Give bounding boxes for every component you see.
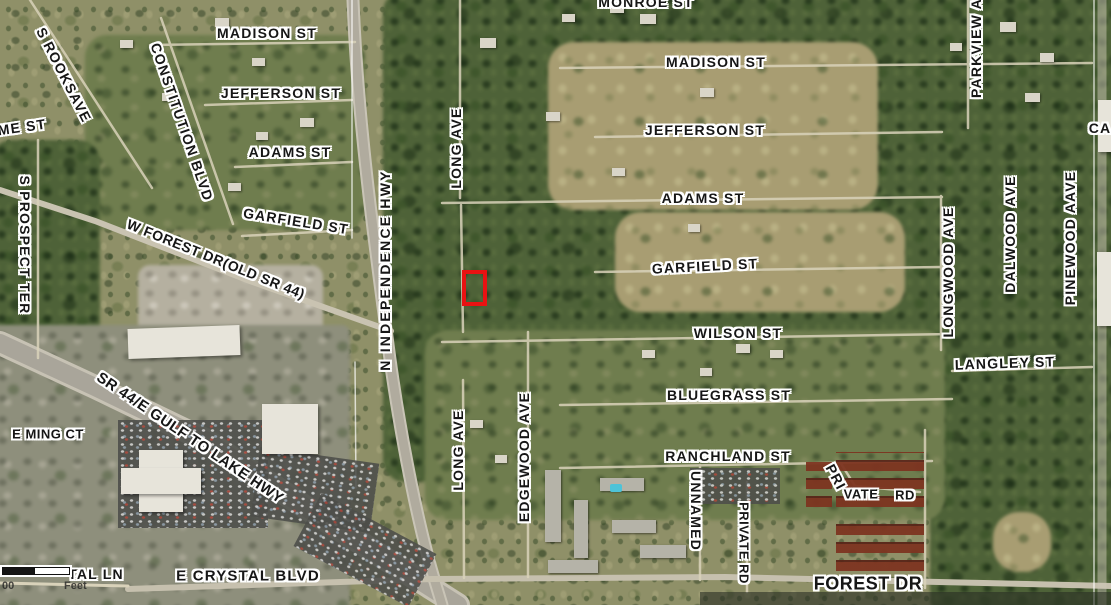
house-roof bbox=[228, 183, 241, 191]
house-roof bbox=[495, 455, 507, 463]
building-roof bbox=[128, 325, 241, 359]
scale-bar-segment-white bbox=[35, 567, 70, 575]
street-label-rd: RD bbox=[895, 488, 915, 503]
building-roof bbox=[262, 404, 318, 454]
street-label-n-independence-hwy: N INDEPENDENCE HWY bbox=[377, 169, 393, 370]
house-roof bbox=[256, 132, 268, 140]
street-label-adams-st: ADAMS ST bbox=[249, 144, 332, 160]
scale-bar: 00 Feet bbox=[2, 567, 70, 575]
street-label-jefferson-st: JEFFERSON ST bbox=[645, 122, 765, 138]
street-label-bluegrass-st: BLUEGRASS ST bbox=[667, 387, 791, 403]
street-label-wilson-st: WILSON ST bbox=[694, 325, 783, 341]
swimming-pool bbox=[610, 484, 622, 492]
street-label-long-ave: LONG AVE bbox=[450, 409, 466, 490]
apartment-building bbox=[600, 478, 644, 491]
house-roof bbox=[300, 118, 314, 127]
scale-bar-segment-black bbox=[2, 567, 35, 575]
apartment-building bbox=[574, 500, 588, 558]
house-roof bbox=[688, 224, 700, 232]
street-label-madison-st: MADISON ST bbox=[666, 54, 766, 70]
house-roof bbox=[640, 14, 656, 24]
house-roof bbox=[1040, 53, 1054, 62]
house-roof bbox=[700, 88, 714, 97]
street-label-parkview-ave: PARKVIEW AVE bbox=[968, 0, 984, 98]
building-roof bbox=[1097, 252, 1111, 326]
street-label-ranchland-st: RANCHLAND ST bbox=[665, 448, 791, 464]
street-label-private-rd: PRIVATE RD bbox=[737, 502, 752, 584]
house-roof bbox=[736, 344, 750, 353]
house-roof bbox=[480, 38, 496, 48]
street-label-monroe-st: MONROE ST bbox=[598, 0, 694, 10]
house-roof bbox=[120, 40, 133, 48]
aerial-map-canvas[interactable]: MONROE STMADISON STJEFFERSON STADAMS STG… bbox=[0, 0, 1111, 605]
street-label-long-ave: LONG AVE bbox=[448, 107, 464, 188]
street-label-forest-dr: FOREST DR bbox=[814, 574, 923, 595]
street-label-jefferson-st: JEFFERSON ST bbox=[221, 85, 341, 101]
building-roof bbox=[121, 468, 201, 494]
apartment-building bbox=[612, 520, 656, 533]
house-roof bbox=[700, 368, 712, 376]
apartment-building bbox=[640, 545, 686, 558]
street-label-s-prospect-ter: S PROSPECT TER bbox=[17, 176, 33, 315]
street-label-e-crystal-blvd: E CRYSTAL BLVD bbox=[176, 568, 320, 585]
house-roof bbox=[562, 14, 575, 22]
apartment-building bbox=[545, 470, 561, 542]
street-label-dalwood-ave: DALWOOD AVE bbox=[1002, 175, 1018, 292]
house-roof bbox=[546, 112, 560, 121]
street-label-edgewood-ave: EDGEWOOD AVE bbox=[516, 392, 532, 522]
street-label-madison-st: MADISON ST bbox=[217, 25, 317, 41]
apartment-building bbox=[548, 560, 598, 573]
scale-bar-units: Feet bbox=[64, 580, 87, 592]
house-roof bbox=[1025, 93, 1040, 102]
scale-bar-number: 00 bbox=[2, 580, 14, 592]
townhome-cluster bbox=[836, 518, 924, 574]
house-roof bbox=[950, 43, 962, 51]
street-label-adams-st: ADAMS ST bbox=[662, 190, 745, 206]
house-roof bbox=[642, 350, 655, 358]
street-label-vate: VATE bbox=[844, 487, 879, 502]
house-roof bbox=[252, 58, 265, 66]
house-roof bbox=[1000, 22, 1016, 32]
selected-parcel-marker bbox=[462, 270, 487, 306]
house-roof bbox=[612, 168, 625, 176]
street-label-unnamed: UNNAMED bbox=[688, 471, 704, 551]
scale-bar-segments bbox=[2, 567, 70, 575]
house-roof bbox=[470, 420, 483, 428]
street-label-longwood-ave: LONGWOOD AVE bbox=[940, 206, 956, 337]
street-label-e-ming-ct: E MING CT bbox=[12, 427, 84, 442]
house-roof bbox=[770, 350, 783, 358]
street-label-pinewood-aave: PINEWOOD AAVE bbox=[1062, 171, 1078, 306]
street-label-ca: CA bbox=[1089, 120, 1111, 136]
